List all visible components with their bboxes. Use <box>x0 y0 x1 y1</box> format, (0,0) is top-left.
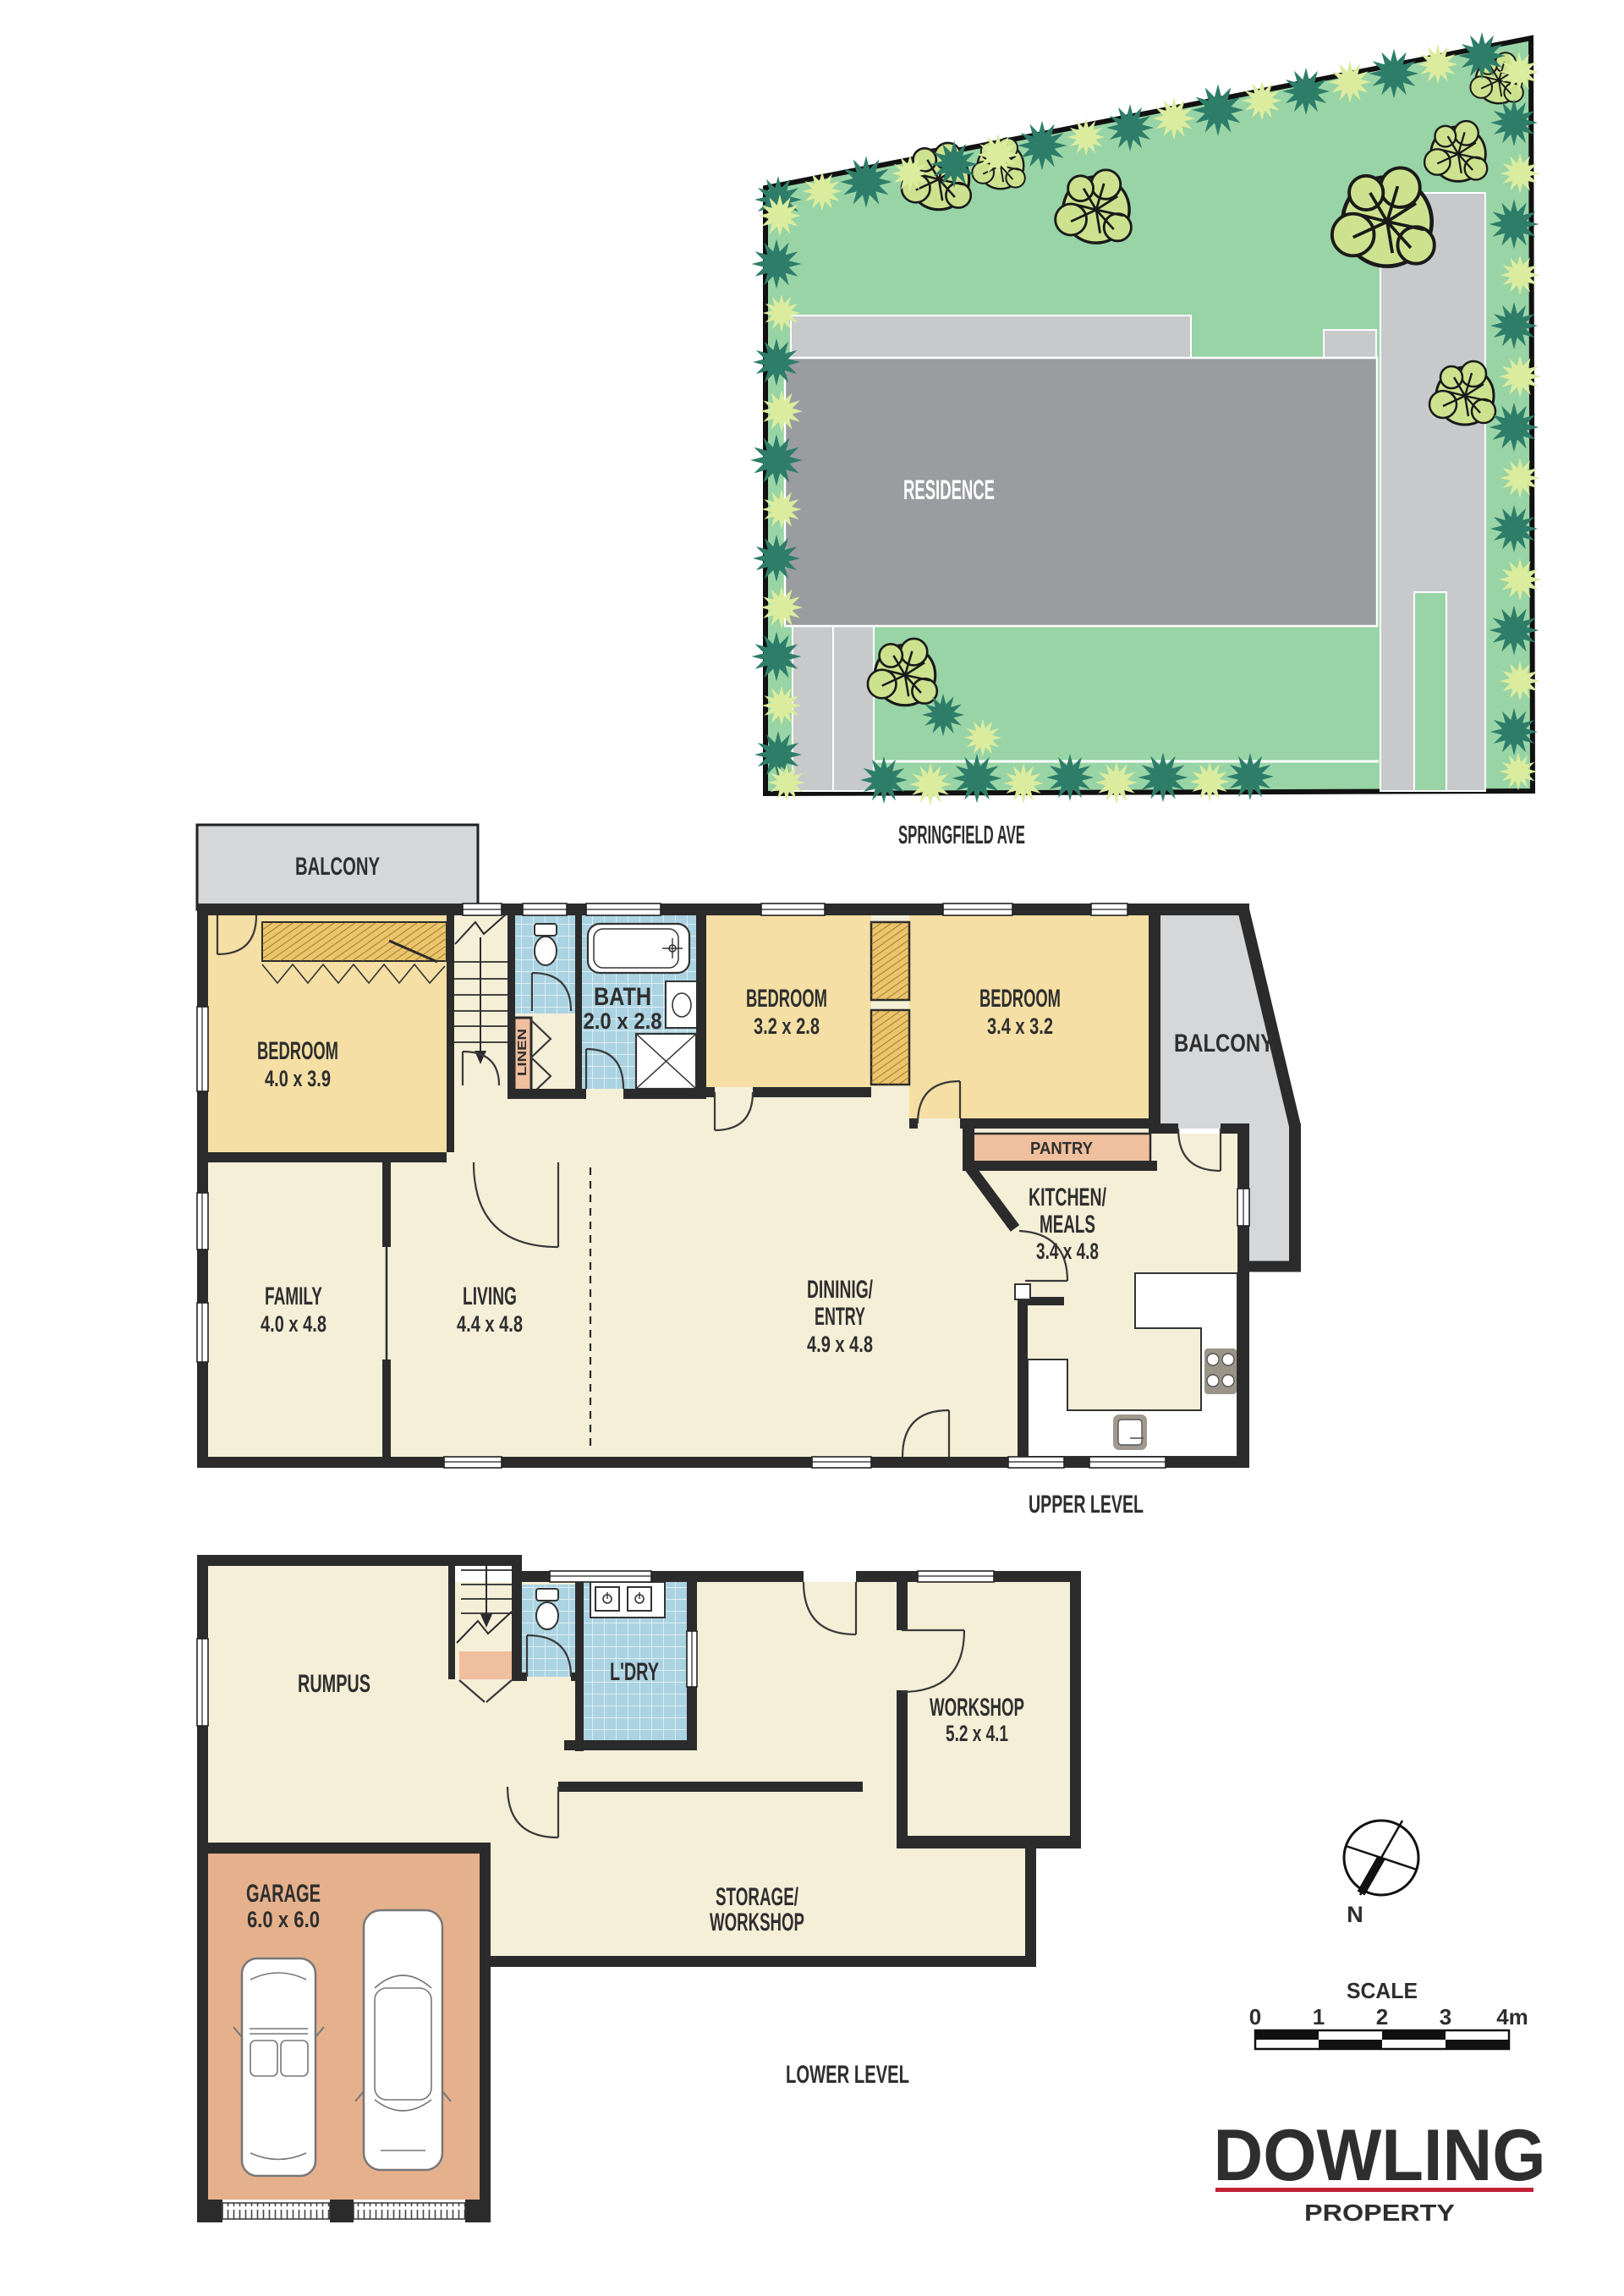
bedroom3-dims: 3.4 x 3.2 <box>987 1013 1053 1039</box>
toilet-icon <box>535 924 557 965</box>
laundry-sinks-icon <box>590 1582 665 1618</box>
linen-label: LINEN <box>515 1029 529 1076</box>
family-dims: 4.0 x 4.8 <box>261 1311 326 1337</box>
brand-logo: DOWLING PROPERTY <box>1214 2115 1546 2226</box>
garage-label: GARAGE <box>246 1880 321 1908</box>
logo-brand-text: DOWLING <box>1214 2115 1546 2196</box>
family-label: FAMILY <box>265 1283 322 1310</box>
scale-title: SCALE <box>1347 1978 1418 2003</box>
laundry-label: L'DRY <box>610 1658 659 1686</box>
site-plan: RESIDENCE SPRINGFIELD AVE <box>750 32 1541 849</box>
vanity-icon <box>666 981 698 1028</box>
dining-label-1: DININIG/ <box>807 1276 873 1304</box>
kitchen-label-2: MEALS <box>1040 1211 1095 1239</box>
living-label: LIVING <box>463 1283 517 1310</box>
scale-bar: SCALE 0 1 2 3 4m <box>1249 1978 1528 2049</box>
stair-landing <box>459 1651 512 1679</box>
shower-icon <box>636 1034 696 1089</box>
floorplan-drawing: RESIDENCE SPRINGFIELD AVE BALCONY <box>0 0 1624 2296</box>
storage-label-2: WORKSHOP <box>710 1909 804 1936</box>
logo-underline <box>1215 2188 1533 2192</box>
pantry-label: PANTRY <box>1030 1140 1094 1158</box>
upper-level-plan: BALCONY <box>197 825 1301 1519</box>
stove-icon <box>1204 1348 1237 1394</box>
kitchen-label-1: KITCHEN/ <box>1029 1184 1106 1211</box>
workshop-label: WORKSHOP <box>930 1694 1024 1722</box>
garage-door-icon <box>222 2203 330 2219</box>
residence-footprint <box>785 358 1377 626</box>
dining-dims: 4.9 x 4.8 <box>807 1332 873 1357</box>
living-dims: 4.4 x 4.8 <box>457 1311 523 1337</box>
workshop-dims: 5.2 x 4.1 <box>946 1721 1008 1746</box>
bedroom3-label: BEDROOM <box>979 985 1061 1013</box>
scale-tick-2: 2 <box>1376 2004 1388 2030</box>
garage-door-icon <box>354 2203 465 2219</box>
balcony-left-label: BALCONY <box>295 853 380 881</box>
car-icon <box>233 1958 324 2176</box>
bedroom2-label: BEDROOM <box>746 985 827 1013</box>
logo-tagline-text: PROPERTY <box>1304 2200 1455 2226</box>
scale-ruler-icon <box>1255 2030 1509 2049</box>
garage-dims: 6.0 x 6.0 <box>247 1907 320 1932</box>
car-icon <box>355 1910 451 2170</box>
upper-level-title: UPPER LEVEL <box>1029 1491 1144 1519</box>
bath-label: BATH <box>594 983 651 1011</box>
scale-tick-0: 0 <box>1249 2004 1261 2030</box>
scale-tick-4: 4m <box>1496 2004 1528 2030</box>
kitchen-dims: 3.4 x 4.8 <box>1036 1239 1099 1264</box>
compass: N <box>1344 1821 1418 1927</box>
scale-tick-3: 3 <box>1440 2004 1451 2030</box>
bedroom1-label: BEDROOM <box>257 1037 338 1065</box>
north-label: N <box>1347 1902 1363 1927</box>
scale-tick-1: 1 <box>1313 2004 1325 2030</box>
balcony-right-label: BALCONY <box>1174 1030 1274 1057</box>
rumpus-label: RUMPUS <box>298 1670 370 1698</box>
storage-label-1: STORAGE/ <box>716 1883 798 1911</box>
floorplan-sheet: RESIDENCE SPRINGFIELD AVE BALCONY <box>0 0 1624 2296</box>
bedroom2-dims: 3.2 x 2.8 <box>754 1013 820 1039</box>
bedroom1-dims: 4.0 x 3.9 <box>265 1066 331 1091</box>
bathtub-icon <box>588 924 689 973</box>
residence-label: RESIDENCE <box>903 475 995 505</box>
street-label: SPRINGFIELD AVE <box>898 820 1025 849</box>
bath-dims: 2.0 x 2.8 <box>584 1008 662 1034</box>
toilet-icon <box>536 1589 558 1629</box>
sink-icon <box>1113 1414 1147 1450</box>
lower-level-title: LOWER LEVEL <box>786 2061 909 2089</box>
dining-label-2: ENTRY <box>815 1303 865 1331</box>
lower-level-plan: RUMPUS L'DRY WORKSHOP 5.2 x 4.1 GARAGE 6… <box>197 1555 1081 2222</box>
